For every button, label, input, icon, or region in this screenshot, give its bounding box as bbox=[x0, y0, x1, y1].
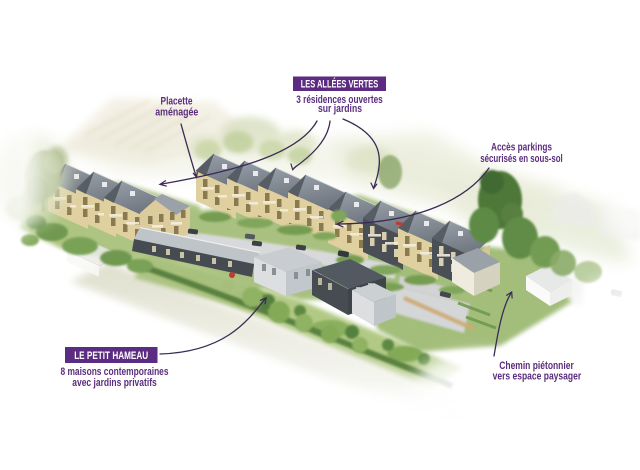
svg-text:sur jardins: sur jardins bbox=[318, 103, 362, 115]
svg-text:LES ALLÉES VERTES: LES ALLÉES VERTES bbox=[301, 78, 379, 91]
svg-text:vers espace paysager: vers espace paysager bbox=[493, 371, 582, 383]
svg-text:aménagée: aménagée bbox=[155, 106, 198, 118]
svg-text:sécurisés en sous-sol: sécurisés en sous-sol bbox=[480, 153, 563, 165]
svg-text:avec jardins privatifs: avec jardins privatifs bbox=[72, 377, 157, 389]
svg-text:LE PETIT HAMEAU: LE PETIT HAMEAU bbox=[74, 350, 148, 362]
svg-text:Accès parkings: Accès parkings bbox=[491, 141, 552, 153]
